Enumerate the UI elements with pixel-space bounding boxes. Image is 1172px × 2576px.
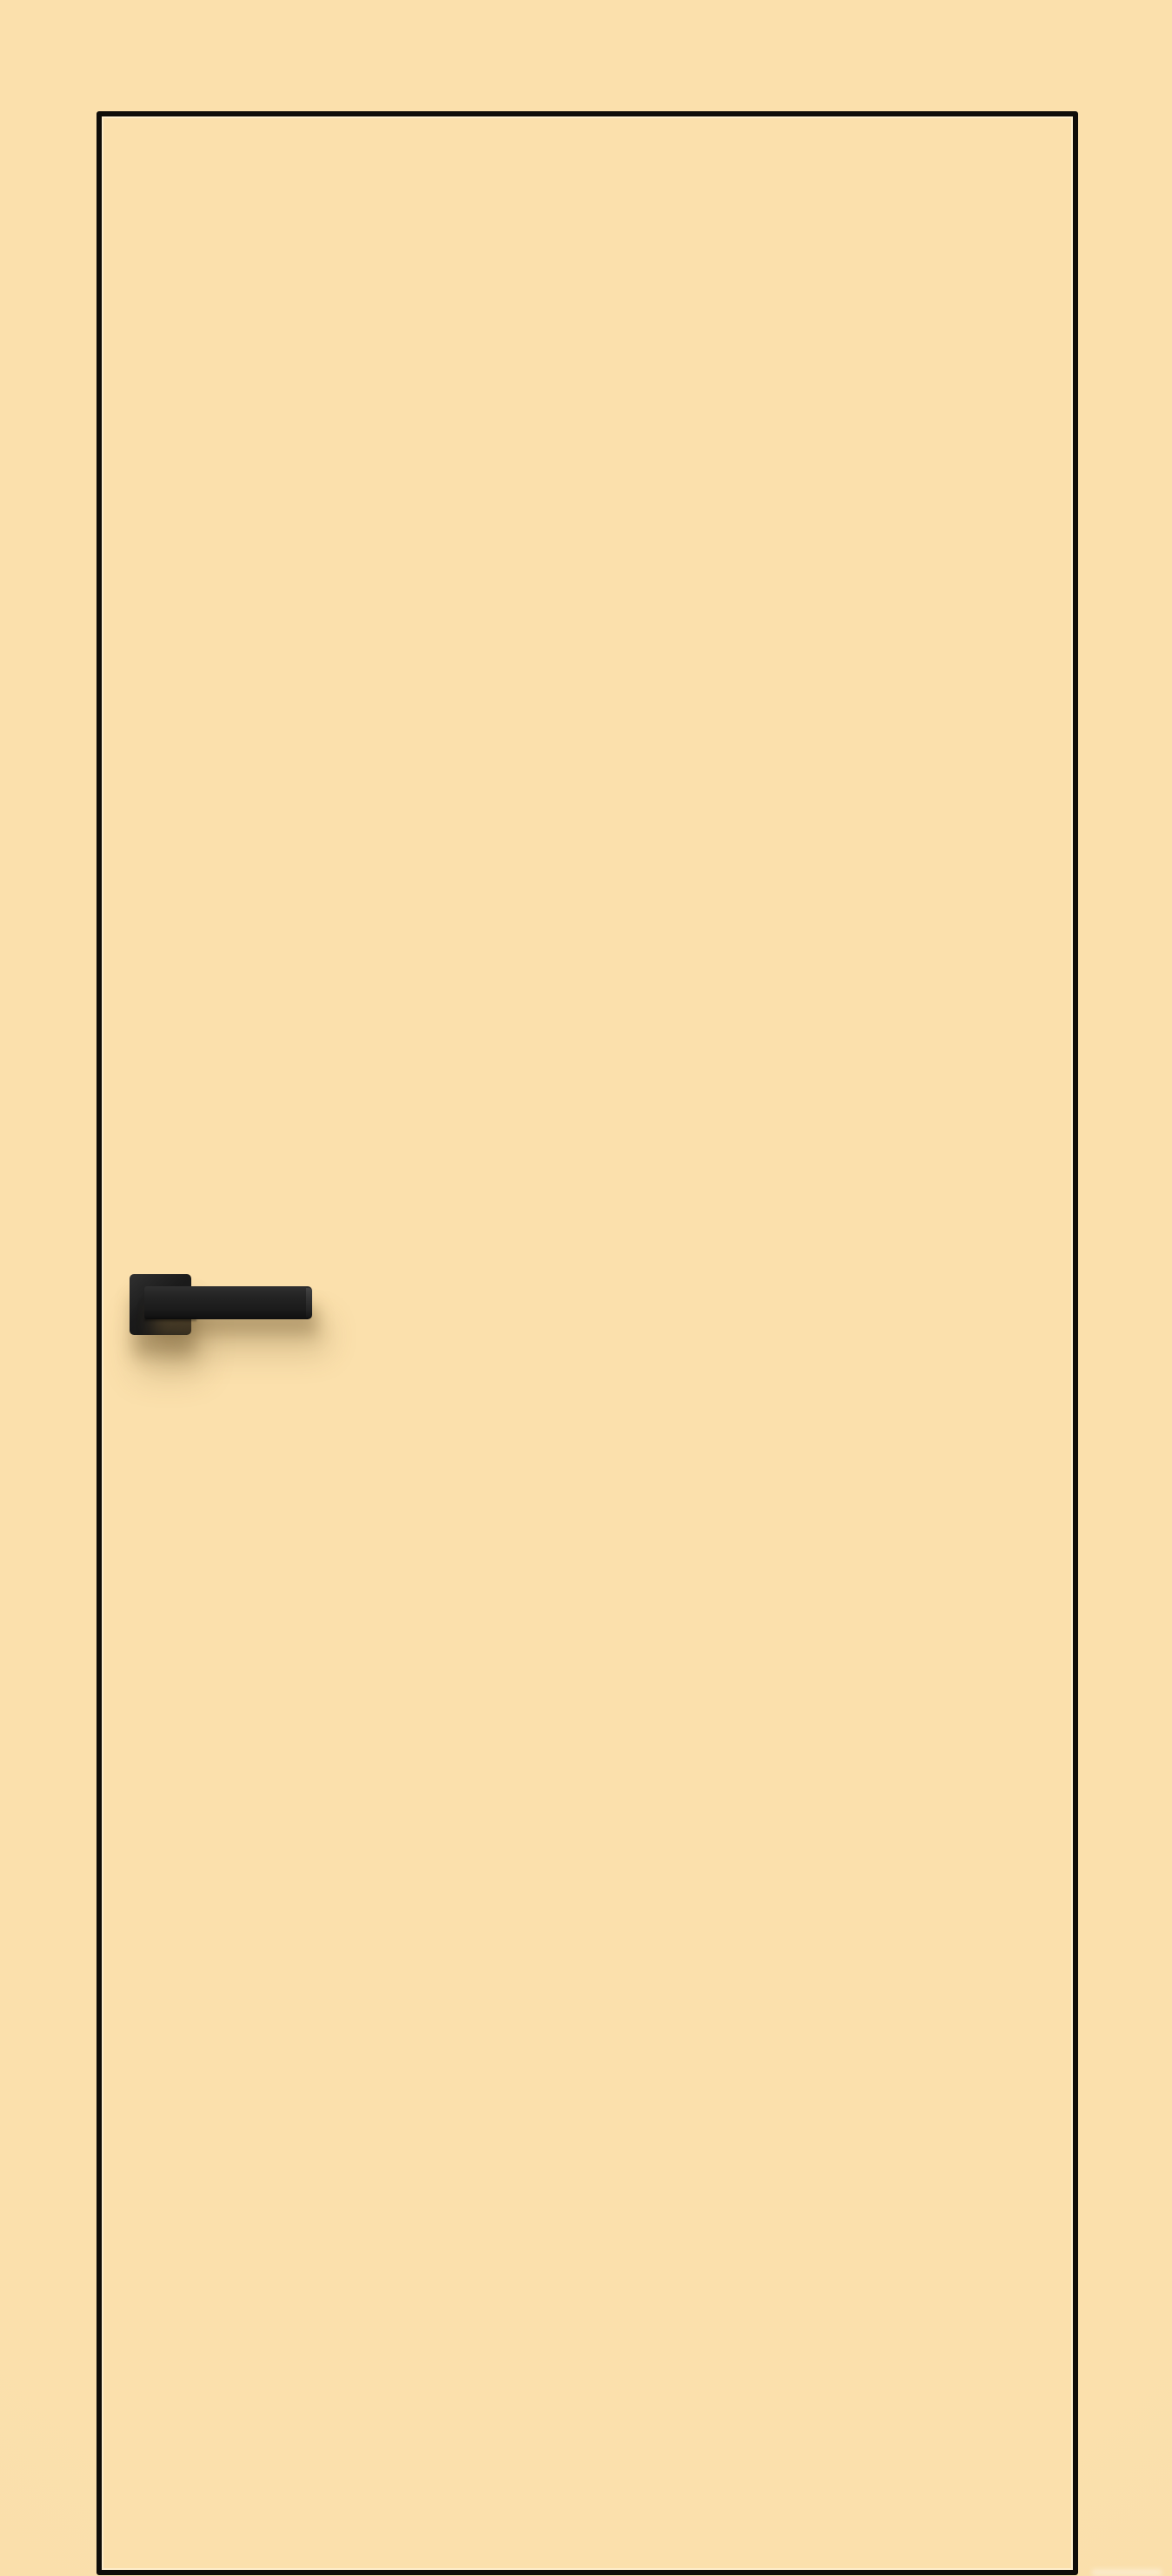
handle-lever bbox=[144, 1286, 312, 1319]
door-leaf bbox=[97, 111, 1078, 2575]
edge-artifact bbox=[1092, 2569, 1162, 2576]
